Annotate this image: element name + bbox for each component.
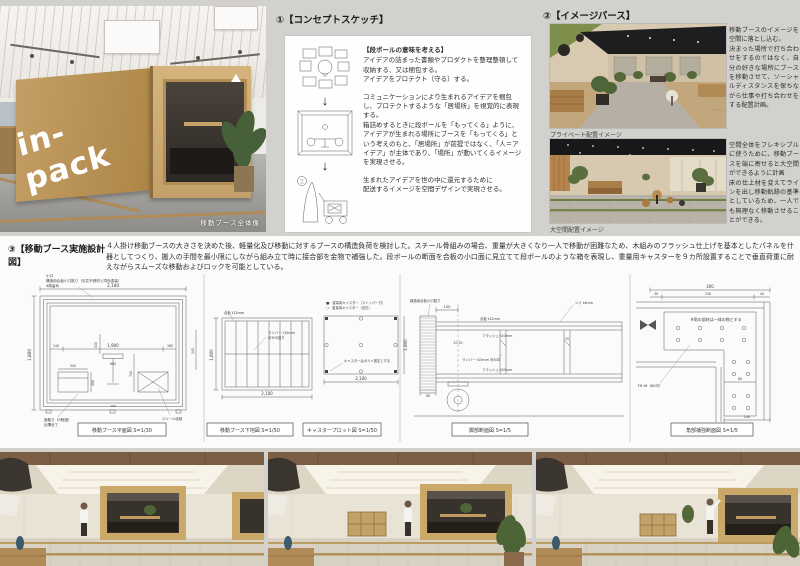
plan-label: 移動ブース平面図 S=1/30 <box>92 427 152 434</box>
inpack-logo-text: in-pack <box>14 89 157 198</box>
substrate-note-board: 合板 t12mm <box>224 310 245 315</box>
corner-dim-300: 300 <box>706 284 714 289</box>
drawing-caster-plot: ■：重量用キャスター（ストッパー付） ○：重量用キャスター（自在） キャスターは… <box>303 300 408 436</box>
render-caption-1: プライベート配置イメージ <box>550 130 622 139</box>
drawing-corner: 300 30 230 40 ※角の部材は一体の物とする 60 140 FB t6… <box>636 284 770 436</box>
concept-text-column: 【段ボールの意味を考える】 アイデアの詰まった書類やプロダクトを整理整頓して収納… <box>357 46 523 226</box>
concept-card: ↓ ↓ 【段ボールの意味を考える】 <box>285 36 531 232</box>
down-arrow-icon: ↓ <box>322 94 329 107</box>
corner-dim-40: 40 <box>760 292 764 296</box>
plan-dim-140: 140 <box>53 344 59 348</box>
down-arrow-icon: ↓ <box>322 159 329 172</box>
leg-note-board: 合板 t12mm <box>480 316 501 321</box>
render-open-layout <box>550 139 726 223</box>
perspective-text-1: 移動ブースのイメージを空間に落とし込む。 決まった場所で打ち合わせをするのではな… <box>729 26 799 111</box>
leg-dim-2020: 20 20 <box>453 341 462 345</box>
concept-para2: コミュニケーションにより生まれるアイデアを梱包し、プロテクトするような「居場所」… <box>363 93 523 168</box>
plan-dim-1900: 1,900 <box>107 343 119 348</box>
leg-dim-100: 100 <box>444 305 452 309</box>
caster-dim-height: 1,800 <box>403 339 408 351</box>
plan-note-bl1: 面取り（R程度） <box>44 417 72 422</box>
concept-para3: 生まれたアイデアを世の中に還元するために 配送するイメージを空間デザインで実現さ… <box>363 176 523 195</box>
substrate-note-pitch: ＠300割り <box>268 335 285 340</box>
plan-dim-145: 145 <box>191 348 195 354</box>
plan-dim-400: 400 <box>91 380 95 386</box>
spot-light-icon <box>238 50 242 54</box>
concept-para1-title: 【段ボールの意味を考える】 <box>363 46 523 55</box>
drawing-plan: 小口 構造用合板小口貼り（天井不燃材と同色塗装） 4周留め 2,100 1,80… <box>27 273 196 436</box>
corner-label: 角部補強断面図 S=1/5 <box>686 427 738 434</box>
caster-legend-2: ○：重量用キャスター（自在） <box>326 305 372 310</box>
leg-dim-15: 15 <box>565 337 569 341</box>
technical-drawings: 小口 構造用合板小口貼り（天井不燃材と同色塗装） 4周留め 2,100 1,80… <box>0 270 800 448</box>
leg-note-shina: シナ t4mm <box>575 300 594 305</box>
plan-dim-500: 500 <box>70 364 76 368</box>
booth-side-face: in-pack <box>16 68 150 202</box>
plan-note-br: スツール収納 <box>162 416 183 421</box>
spot-light-icon <box>196 56 200 60</box>
leg-label: 脚部断面図 S=1/5 <box>469 427 511 434</box>
leg-dim-40: 40 <box>426 394 430 398</box>
sequence-photo-1 <box>0 452 264 566</box>
concept-heading: ①【コンセプトスケッチ】 <box>276 12 389 26</box>
caster-legend-1: ■：重量用キャスター（ストッパー付） <box>326 300 385 305</box>
plant <box>206 108 266 218</box>
corner-dim-230: 230 <box>705 292 711 296</box>
perspective-heading: ②【イメージパース】 <box>543 8 635 22</box>
concept-para1: アイデアの詰まった書類やプロダクトを整理整頓して収納する、又は梱包する。 アイデ… <box>363 56 523 84</box>
sequence-photo-3 <box>536 452 800 566</box>
substrate-note-lumber: ランバー t15mm <box>268 330 296 335</box>
plan-dim-520: 520 <box>94 342 98 348</box>
ac-unit <box>104 20 160 54</box>
person-figure <box>80 503 88 537</box>
plan-note-top1: 小口 <box>46 273 54 278</box>
leg-note-flush-top: フラッシュ t20mm <box>482 333 513 338</box>
design-description: ４人掛け移動ブースの大きさを決めた後、軽量化及び移動に対するブースの構造負荷を検… <box>106 242 794 274</box>
main-booth-photo: in-pack 移動ブース全体像 <box>0 6 266 232</box>
substrate-dim-height: 1,800 <box>209 349 214 361</box>
leg-note-flush-bottom: フラッシュ t20mm <box>482 367 513 372</box>
corner-dim-140: 140 <box>744 415 750 419</box>
render-private-layout <box>550 24 726 128</box>
render-caption-2: 大空間配置イメージ <box>550 225 604 234</box>
corner-dim-60: 60 <box>738 377 742 381</box>
sketch-booth-room <box>296 109 354 157</box>
leg-note-edge: 構造用合板小口貼り <box>410 298 441 303</box>
substrate-label: 移動ブース下地図 S=1/50 <box>220 427 280 434</box>
drawing-leg-section: 構造用合板小口貼り シナ t4mm 合板 t12mm フラッシュ t20mm ラ… <box>410 298 624 436</box>
plan-dim-600: 600 <box>110 362 116 366</box>
spot-light-icon <box>30 54 34 58</box>
spot-light-icon <box>70 60 74 64</box>
corner-dim-30: 30 <box>654 292 658 296</box>
plan-dim-width: 2,100 <box>107 283 119 288</box>
leg-note-lumber: ランバー t15mm ＠300 <box>462 357 500 362</box>
plan-note-top3: 4周留め <box>46 283 59 288</box>
plan-dim-180: 180 <box>167 344 173 348</box>
caster-dim-width: 2,100 <box>355 376 367 381</box>
concept-sketch-column: ↓ ↓ <box>293 46 357 226</box>
substrate-dim-width: 2,100 <box>261 391 273 396</box>
caster-note: キャスターはボルト固定とする <box>344 358 390 363</box>
plan-dim-720: 720 <box>129 371 133 377</box>
main-photo-caption: 移動ブース全体像 <box>200 217 260 227</box>
design-heading: ③【移動ブース実施設計図】 <box>8 242 106 274</box>
sketch-idea-boxes <box>298 46 352 92</box>
sequence-photo-2 <box>268 452 532 566</box>
perspective-text-2: 空間全体をフレキシブルに使うために、移動ブースを端に寄せると大空間ができるように… <box>729 141 799 226</box>
ac-unit <box>214 6 258 30</box>
plan-dim-height: 1,800 <box>27 349 32 361</box>
drawing-substrate: 合板 t12mm ランバー t15mm ＠300割り 2,100 1,800 移… <box>207 310 312 436</box>
corner-note: ※角の部材は一体の物とする <box>690 316 741 322</box>
person-figure <box>404 501 412 537</box>
booth-triangle-logo-icon <box>231 74 241 82</box>
plan-dim-160: 160 <box>110 404 116 408</box>
plan-note-bl2: 出隅全て <box>44 422 59 427</box>
caster-label: キャスタープロット図 S=1/50 <box>307 427 377 434</box>
sketch-person-cart <box>296 174 354 226</box>
corner-note-fb: FB t6（60巾） <box>638 383 663 388</box>
